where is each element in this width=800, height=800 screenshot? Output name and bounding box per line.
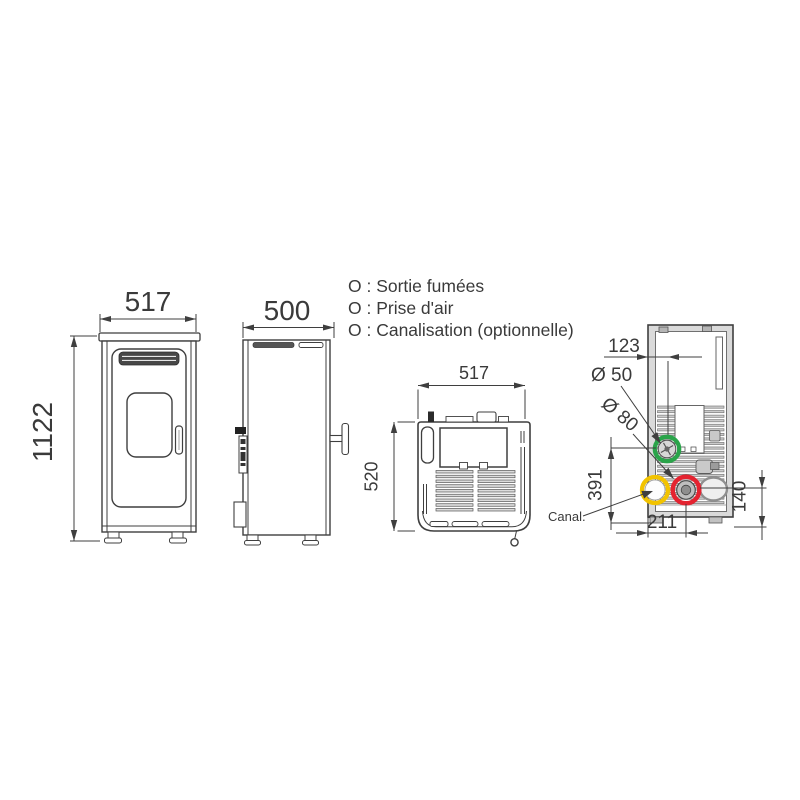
technical-drawing-page: O : Sortie fumées O : Prise d'air O : Ca… bbox=[0, 0, 800, 800]
top-edge-details bbox=[428, 412, 509, 423]
side-handle bbox=[330, 424, 349, 455]
air-intake-fan-icon bbox=[658, 440, 676, 458]
top-view: 517 520 bbox=[362, 363, 531, 546]
air-height-label: 391 bbox=[586, 469, 607, 501]
front-door-window bbox=[127, 393, 172, 457]
legend-item-ducting: O : Canalisation (optionnelle) bbox=[348, 320, 574, 340]
top-hopper-lid bbox=[440, 428, 507, 469]
front-top-plate bbox=[99, 333, 200, 341]
side-feet bbox=[245, 535, 319, 545]
legend-item-air-intake: O : Prise d'air bbox=[348, 298, 454, 318]
side-depth-label: 500 bbox=[264, 295, 311, 326]
air-diameter-label: Ø 50 bbox=[591, 365, 632, 386]
legend: O : Sortie fumées O : Prise d'air O : Ca… bbox=[348, 276, 574, 340]
front-door-handle bbox=[176, 426, 183, 454]
flue-offset-top-label: 123 bbox=[608, 336, 640, 357]
front-width-dimension: 517 bbox=[100, 286, 196, 332]
side-depth-dimension: 500 bbox=[243, 295, 334, 338]
rear-right-slot bbox=[716, 337, 723, 389]
front-air-grille bbox=[119, 352, 179, 365]
duct-port bbox=[645, 480, 665, 500]
top-depth-dimension: 520 bbox=[362, 422, 416, 531]
flue-offset-label: 211 bbox=[647, 512, 677, 533]
side-door-latch bbox=[235, 427, 247, 473]
side-view: 500 bbox=[234, 295, 349, 545]
legend-item-smoke-outlet: O : Sortie fumées bbox=[348, 276, 484, 296]
flue-diameter-label: Ø 80 bbox=[597, 394, 642, 437]
front-feet bbox=[105, 532, 187, 543]
side-top-vents bbox=[253, 343, 323, 348]
side-rear-protrusion bbox=[234, 502, 246, 527]
top-depth-label: 520 bbox=[362, 461, 382, 491]
top-left-slot bbox=[422, 427, 434, 463]
power-cord bbox=[511, 531, 518, 546]
front-height-dimension: 1122 bbox=[27, 336, 100, 541]
top-width-label: 517 bbox=[459, 363, 489, 383]
front-width-label: 517 bbox=[125, 286, 172, 317]
front-height-label: 1122 bbox=[27, 402, 58, 462]
front-view: 517 1122 bbox=[27, 286, 200, 543]
side-body bbox=[243, 340, 330, 535]
rear-view: 123 Ø 50 Ø 80 391 140 211 Cana bbox=[548, 325, 767, 540]
smoke-pipe-icon bbox=[677, 481, 696, 500]
pellet-stove-dimension-drawing: O : Sortie fumées O : Prise d'air O : Ca… bbox=[0, 0, 800, 800]
flue-height-label: 140 bbox=[730, 481, 751, 513]
rear-convection-outlet bbox=[700, 478, 727, 501]
top-width-dimension: 517 bbox=[418, 363, 525, 419]
duct-label: Canal. bbox=[548, 509, 586, 524]
